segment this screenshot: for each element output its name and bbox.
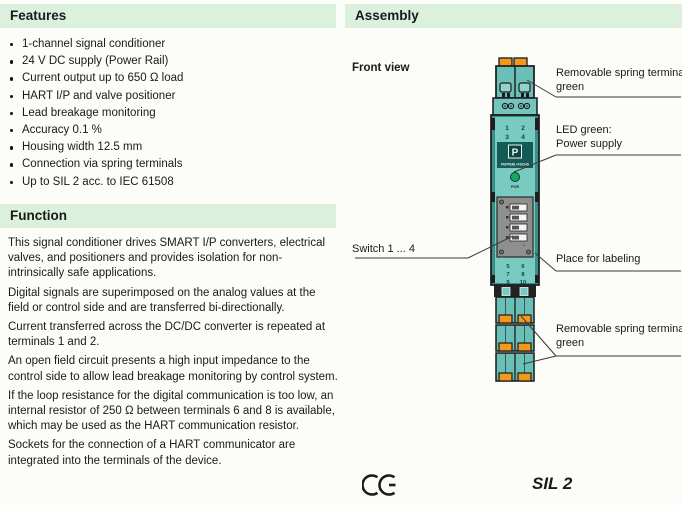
- function-paragraph: This signal conditioner drives SMART I/P…: [8, 236, 338, 282]
- callout-removable-spring-terminal: Removable spring terminal green: [556, 67, 682, 94]
- assembly-title: Assembly: [355, 8, 419, 23]
- function-paragraph: Current transferred across the DC/DC con…: [8, 320, 338, 350]
- callout-led-power-supply: LED green: Power supply: [556, 124, 682, 151]
- function-paragraph: An open field circuit presents a high in…: [8, 354, 338, 384]
- pf-logo-icon: P: [512, 148, 519, 159]
- feature-item: HART I/P and valve positioner: [8, 88, 334, 105]
- front-view-label: Front view: [352, 62, 410, 74]
- svg-text:2: 2: [521, 125, 525, 132]
- callout-removable-spring-terminals: Removable spring terminals green: [556, 323, 682, 350]
- function-paragraph: Sockets for the connection of a HART com…: [8, 438, 338, 468]
- switch-index-label: 1: [523, 243, 525, 247]
- bottom-terminal-block-3: [496, 353, 534, 381]
- function-paragraph: Digital signals are superimposed on the …: [8, 286, 338, 316]
- svg-text:7: 7: [506, 272, 509, 278]
- feature-item: Lead breakage monitoring: [8, 105, 334, 122]
- brand-panel: P PEPPERL+FUCHS: [497, 142, 533, 168]
- device-front-view-figure: 1 2 3 4 P PEPPERL+FUCHS PWR: [480, 55, 550, 390]
- switch-and-labeling-panel: 1: [497, 197, 533, 257]
- feature-item: Housing width 12.5 mm: [8, 139, 334, 156]
- features-section-header: Features: [0, 4, 336, 28]
- feature-item: 24 V DC supply (Power Rail): [8, 53, 334, 70]
- function-section-header: Function: [0, 204, 336, 228]
- power-led: PWR: [511, 173, 520, 190]
- top-terminal-block: [496, 66, 534, 98]
- datasheet-page: Features 1-channel signal conditioner 24…: [0, 0, 682, 505]
- feature-item: 1-channel signal conditioner: [8, 36, 334, 53]
- ce-mark: CE: [362, 472, 402, 503]
- svg-text:4: 4: [521, 134, 525, 141]
- features-title: Features: [10, 8, 66, 23]
- led-label: PWR: [511, 185, 520, 189]
- test-socket-shoulder: [493, 98, 537, 115]
- feature-item: Accuracy 0.1 %: [8, 122, 334, 139]
- ce-mark-icon: [362, 472, 402, 498]
- function-title: Function: [10, 208, 67, 223]
- bottom-terminal-block-2: [496, 325, 534, 351]
- assembly-section-header: Assembly: [345, 4, 682, 28]
- features-list: 1-channel signal conditioner 24 V DC sup…: [8, 36, 334, 191]
- brand-text: PEPPERL+FUCHS: [501, 163, 529, 167]
- function-paragraph: If the loop resistance for the digital c…: [8, 389, 338, 435]
- callout-switch-1-4: Switch 1 ... 4: [352, 243, 472, 257]
- feature-item: Current output up to 650 Ω load: [8, 70, 334, 87]
- svg-text:3: 3: [505, 134, 509, 141]
- clamp-band: [494, 285, 536, 297]
- feature-item: Connection via spring terminals: [8, 156, 334, 173]
- svg-text:1: 1: [505, 125, 509, 132]
- function-text: This signal conditioner drives SMART I/P…: [8, 236, 338, 473]
- bottom-terminal-block-1: [496, 297, 534, 323]
- sil2-badge: SIL 2: [532, 474, 572, 494]
- feature-item: Up to SIL 2 acc. to IEC 61508: [8, 174, 334, 191]
- callout-place-for-labeling: Place for labeling: [556, 253, 682, 267]
